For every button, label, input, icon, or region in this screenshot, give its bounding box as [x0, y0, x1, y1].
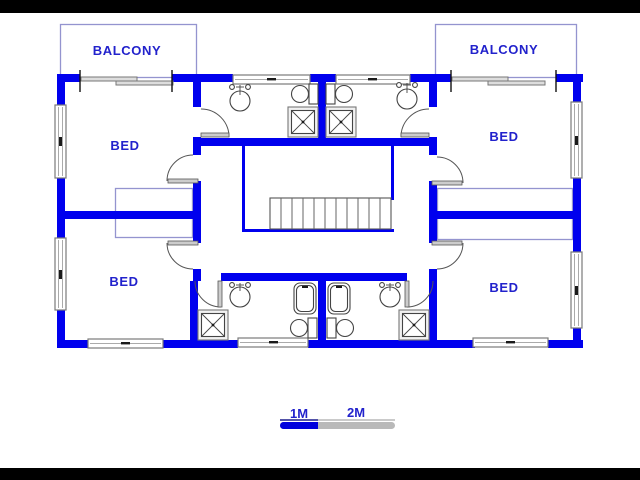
- wall-segment: [410, 74, 451, 82]
- basin-bottom-left: [230, 283, 251, 307]
- wall-segment: [193, 138, 437, 146]
- bed-top-left-label: BED: [110, 138, 139, 153]
- window-top-left-bath: [233, 75, 310, 84]
- bathtub-bottom-right: [328, 283, 350, 314]
- wall-segment: [573, 328, 581, 348]
- wall-segment: [172, 74, 233, 82]
- balcony-left-label: BALCONY: [93, 43, 161, 58]
- wall-segment: [57, 74, 65, 105]
- stairwell-wall-left: [242, 146, 245, 232]
- window-bottom-left-bed: [88, 339, 163, 348]
- shower-bottom-left: [198, 310, 228, 340]
- window-right-lower: [571, 252, 582, 328]
- window-right-upper: [571, 102, 582, 178]
- letterbox-bottom: [0, 468, 640, 480]
- wall-segment: [57, 310, 65, 348]
- window-left-upper: [55, 105, 66, 178]
- basin-bottom-right: [380, 283, 401, 307]
- toilet-top-right: [326, 84, 353, 104]
- stairwell-wall-right: [391, 146, 394, 200]
- wall-segment: [429, 211, 581, 219]
- toilet-top-left: [292, 84, 319, 104]
- wall-segment: [310, 74, 336, 82]
- window-bottom-right-bed: [473, 338, 548, 347]
- scale-bar-blue-end: [306, 422, 318, 429]
- bed-bottom-right-label: BED: [489, 280, 518, 295]
- wall-segment: [573, 74, 581, 102]
- balcony-right-label: BALCONY: [470, 42, 538, 57]
- bed-top-right-label: BED: [489, 129, 518, 144]
- toilet-bottom-right: [327, 318, 354, 338]
- scale-label-2m: 2M: [347, 405, 365, 420]
- bathtub-bottom-left: [294, 283, 316, 314]
- shower-bottom-right: [399, 310, 429, 340]
- floor-plan-page: BALCONY BALCONY BED BED BED BED 1M 2M: [0, 0, 640, 480]
- wall-segment: [318, 82, 326, 146]
- floor-plan-drawing: BALCONY BALCONY BED BED BED BED 1M 2M: [0, 0, 640, 480]
- wall-segment: [163, 340, 238, 348]
- wall-segment: [308, 340, 475, 348]
- wall-segment: [429, 82, 437, 107]
- wall-segment: [193, 269, 201, 281]
- shower-top-right: [326, 107, 356, 137]
- bed-bottom-left-label: BED: [109, 274, 138, 289]
- shower-top-left: [288, 107, 318, 137]
- window-left-lower: [55, 238, 66, 310]
- window-bottom-left-bath: [238, 338, 308, 347]
- wall-segment: [193, 82, 201, 107]
- wall-segment: [318, 273, 326, 340]
- wall-segment: [429, 269, 437, 281]
- letterbox-top: [0, 0, 640, 13]
- staircase: [270, 198, 391, 229]
- wall-segment: [57, 178, 65, 238]
- toilet-bottom-left: [291, 318, 318, 338]
- basin-top-left: [230, 85, 251, 111]
- wall-segment: [57, 211, 201, 219]
- wall-segment: [221, 273, 407, 281]
- scale-label-1m: 1M: [290, 406, 308, 421]
- basin-top-right: [397, 83, 418, 109]
- wall-segment: [429, 281, 437, 340]
